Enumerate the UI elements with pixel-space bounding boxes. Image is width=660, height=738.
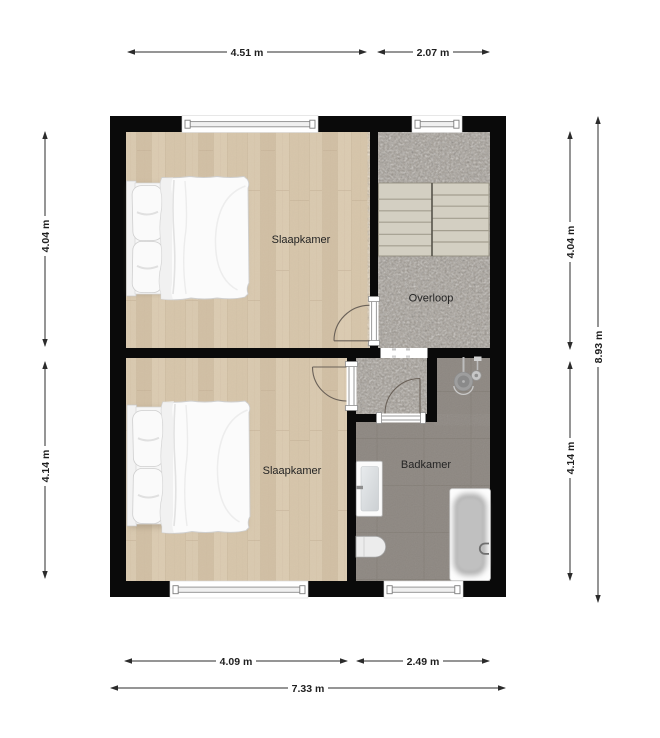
svg-text:Slaapkamer: Slaapkamer bbox=[263, 465, 322, 477]
svg-text:4.04 m: 4.04 m bbox=[40, 220, 52, 253]
svg-text:4.09 m: 4.09 m bbox=[220, 656, 253, 668]
svg-text:Badkamer: Badkamer bbox=[401, 459, 451, 471]
svg-text:4.14 m: 4.14 m bbox=[565, 442, 577, 475]
svg-text:4.04 m: 4.04 m bbox=[565, 226, 577, 259]
svg-text:Slaapkamer: Slaapkamer bbox=[272, 234, 331, 246]
svg-text:4.14 m: 4.14 m bbox=[40, 450, 52, 483]
svg-text:Overloop: Overloop bbox=[409, 293, 454, 305]
svg-text:7.33 m: 7.33 m bbox=[292, 683, 325, 695]
svg-text:2.07 m: 2.07 m bbox=[417, 47, 450, 59]
svg-text:2.49 m: 2.49 m bbox=[407, 656, 440, 668]
svg-text:4.51 m: 4.51 m bbox=[231, 47, 264, 59]
svg-text:8.93 m: 8.93 m bbox=[593, 331, 605, 364]
